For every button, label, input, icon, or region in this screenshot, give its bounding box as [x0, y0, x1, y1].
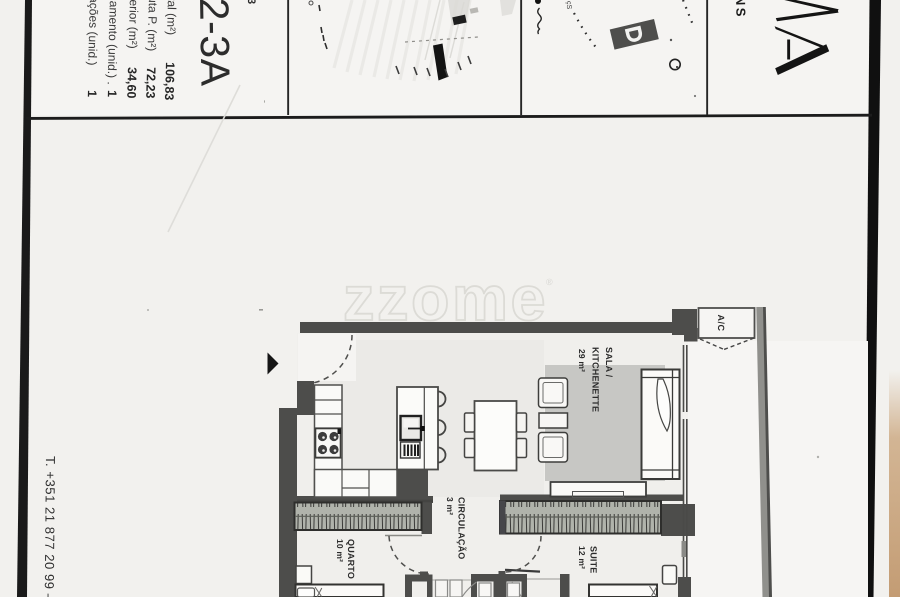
svg-text:®: ®	[546, 277, 553, 287]
svg-text:10 m²: 10 m²	[335, 539, 345, 562]
svg-text:106,83: 106,83	[162, 62, 177, 101]
svg-text:ações (unid.): ações (unid.)	[85, 0, 101, 66]
svg-text:34,60: 34,60	[124, 67, 139, 99]
svg-text:çS: çS	[565, 1, 572, 10]
svg-text:3: 3	[245, 0, 257, 4]
svg-text:3 m²: 3 m²	[445, 497, 455, 515]
svg-text:A/C: A/C	[716, 315, 726, 332]
svg-text:T. +351 21 877 20 99 —: T. +351 21 877 20 99 —	[42, 456, 58, 597]
svg-text:KITCHENETTE: KITCHENETTE	[591, 347, 601, 412]
svg-text:CIRCULAÇÃO: CIRCULAÇÃO	[457, 497, 468, 560]
svg-text:terior (m²): terior (m²)	[126, 0, 141, 49]
svg-text:1: 1	[85, 90, 99, 97]
svg-text:tal (m²): tal (m²)	[164, 0, 179, 35]
svg-text:NS: NS	[733, 0, 749, 19]
svg-text:SUITE: SUITE	[589, 546, 599, 574]
svg-text:2-3A: 2-3A	[191, 0, 239, 87]
svg-text:29 m²: 29 m²	[577, 349, 587, 372]
svg-text:uta P. (m²): uta P. (m²)	[145, 0, 160, 51]
svg-text:12 m²: 12 m²	[577, 546, 587, 569]
svg-text:72,23: 72,23	[143, 67, 158, 99]
svg-text:SALA /: SALA /	[604, 347, 614, 378]
svg-text:namento (unid.) .: namento (unid.) .	[105, 0, 121, 85]
svg-text:QUARTO: QUARTO	[346, 539, 356, 579]
svg-text:-: -	[260, 100, 270, 103]
svg-text:1: 1	[105, 90, 119, 97]
